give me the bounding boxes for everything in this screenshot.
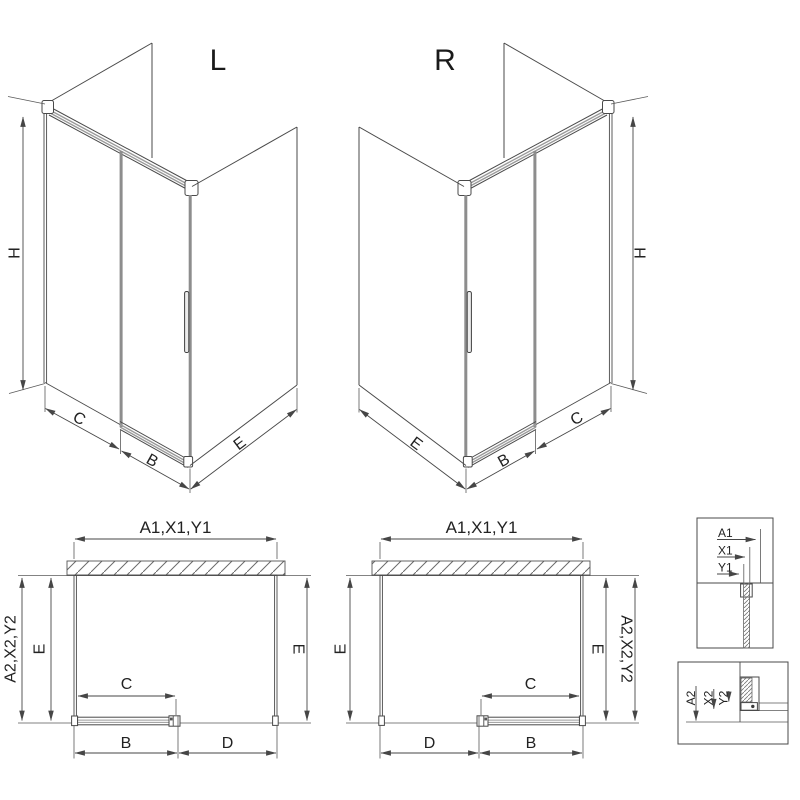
- plan-view-left: A1,X1,Y1 A2,X2,Y2 E E C B D: [3, 518, 312, 759]
- iso-view-left: L H C B E: [7, 43, 298, 493]
- dim-label-side-right-iso: E: [407, 434, 426, 454]
- detail-label-a1: A1: [718, 526, 733, 540]
- dim-label-front-left-iso: C: [70, 409, 88, 429]
- dim-label-depth-left-right-plan: E: [333, 644, 350, 655]
- dim-label-fixed-left-plan: D: [222, 735, 234, 752]
- dim-label-width-left-plan: A1,X1,Y1: [140, 518, 212, 537]
- detail-label-a2: A2: [684, 690, 698, 705]
- variant-label-left: L: [210, 44, 227, 77]
- detail-floor-profile: A2 X2 Y2: [678, 662, 788, 744]
- dim-label-door-right-plan: B: [526, 735, 537, 752]
- detail-label-y2: Y2: [717, 690, 731, 705]
- dim-label-depth-left-left-plan: E: [32, 644, 49, 655]
- dim-label-door-left-plan: B: [121, 735, 132, 752]
- dim-label-depth-right-left-plan: E: [290, 644, 307, 655]
- drawing-canvas: L H C B E R H C B E A1,X1,Y1 A2,X2,Y2 E …: [0, 0, 800, 800]
- detail-label-y1: Y1: [718, 561, 733, 575]
- iso-view-right: R H C B E: [359, 43, 650, 493]
- detail-wall-profile: A1 X1 Y1: [697, 518, 773, 648]
- technical-drawing-sheet: L H C B E R H C B E A1,X1,Y1 A2,X2,Y2 E …: [0, 0, 800, 800]
- dim-label-depth-outer-left-plan: A2,X2,Y2: [3, 615, 20, 683]
- dim-label-width-right-plan: A1,X1,Y1: [446, 518, 518, 537]
- variant-label-right: R: [434, 44, 456, 77]
- dim-label-depth-outer-right-plan: A2,X2,Y2: [618, 615, 635, 683]
- iso-right-geometry: [359, 43, 648, 493]
- plan-view-right: A1,X1,Y1 E E A2,X2,Y2 C D B: [333, 518, 640, 759]
- detail-label-x1: X1: [718, 544, 733, 558]
- dim-label-fixed-right-plan: D: [424, 735, 436, 752]
- dim-label-door-left-iso: B: [143, 451, 161, 471]
- detail-label-x2: X2: [702, 690, 716, 705]
- dim-label-panel-left-plan: C: [121, 676, 133, 693]
- wall-hatch-right-plan: [372, 561, 590, 575]
- wall-hatch-left-plan: [67, 561, 285, 575]
- dim-label-height-right-iso: H: [633, 247, 650, 259]
- dim-label-panel-right-plan: C: [525, 676, 537, 693]
- dim-label-door-right-iso: B: [495, 451, 513, 471]
- dim-label-front-right-iso: C: [568, 409, 586, 429]
- dim-label-side-left-iso: E: [231, 434, 250, 454]
- iso-left-geometry: [8, 43, 297, 493]
- dim-label-height-left-iso: H: [7, 247, 24, 259]
- dim-label-depth-right-right-plan: E: [589, 644, 606, 655]
